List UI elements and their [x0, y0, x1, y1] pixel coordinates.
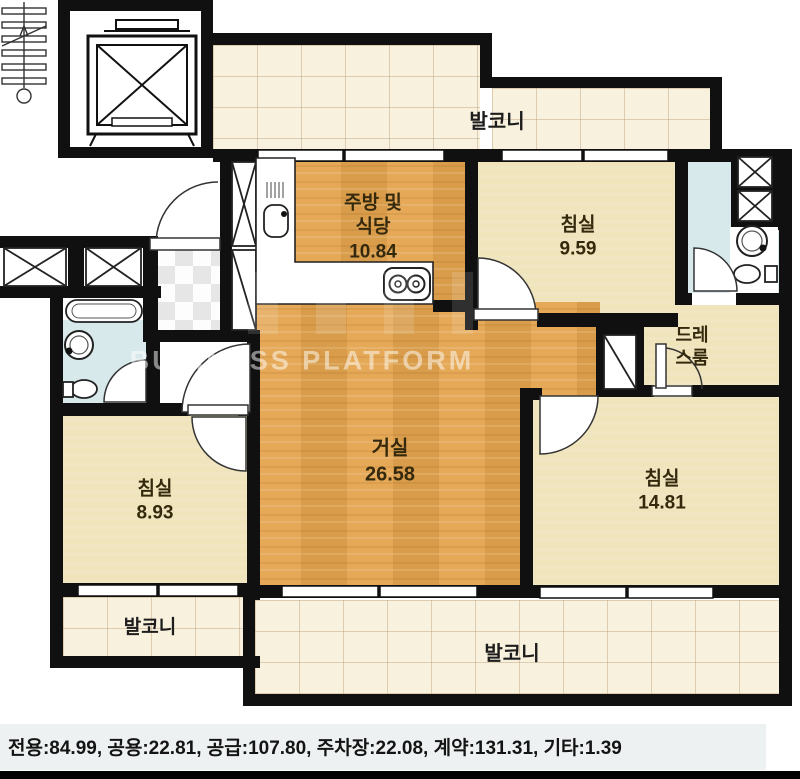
elevator-icon: [88, 20, 196, 146]
label-balcony-bottom: 발코니: [484, 642, 539, 668]
label-living: 거실 26.58: [365, 436, 415, 487]
label-balcony-left: 발코니: [124, 616, 176, 640]
label-bedroom-right: 침실 14.81: [638, 468, 686, 517]
label-kitchen: 주방 및 식당 10.84: [344, 192, 402, 265]
toilet-icon: [734, 265, 777, 283]
floor-plan-canvas: BUSINESS PLATFORM 발코니 주방 및 식당 10.84 침실 9…: [0, 0, 800, 779]
bottom-divider: [0, 771, 800, 779]
area-summary-caption: 전용:84.99, 공용:22.81, 공급:107.80, 주차장:22.08…: [8, 733, 622, 760]
label-bedroom-top: 침실 9.59: [560, 214, 597, 263]
label-dressroom: 드레 스룸: [675, 324, 708, 370]
bathroom-right-fixtures: [730, 226, 778, 293]
label-bedroom-left: 침실 8.93: [137, 478, 174, 527]
toilet-icon: [63, 380, 97, 398]
label-balcony-top: 발코니: [469, 110, 524, 136]
wash-basin-icon: [65, 331, 93, 359]
kitchen-sink-icon: [264, 205, 288, 237]
watermark-text: BUSINESS PLATFORM: [130, 346, 475, 377]
stairs-icon: [2, 2, 46, 103]
watermark-logo: [248, 272, 473, 334]
bathtub-icon: [66, 300, 142, 322]
